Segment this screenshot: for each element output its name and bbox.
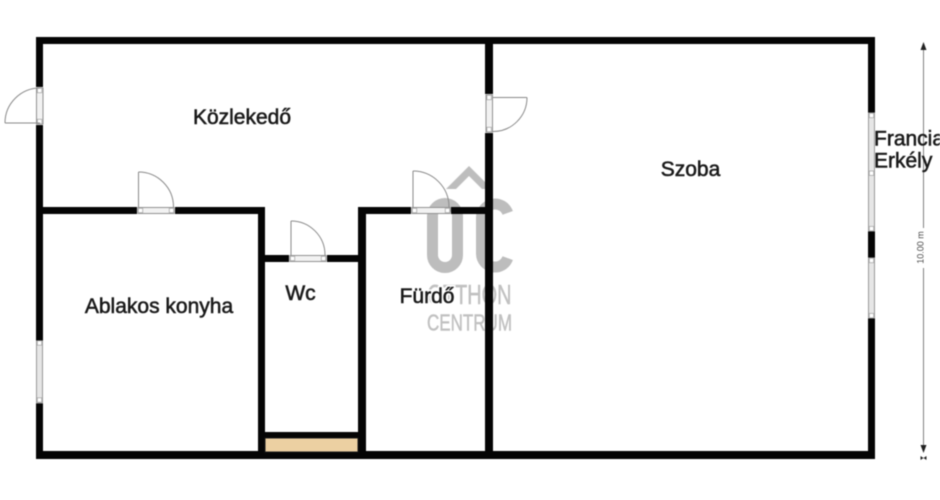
svg-text:Wc: Wc <box>285 282 315 305</box>
svg-text:CENTRUM: CENTRUM <box>427 310 512 336</box>
svg-text:Közlekedő: Közlekedő <box>193 106 291 129</box>
svg-text:Erkély: Erkély <box>874 150 933 173</box>
svg-text:Fürdő: Fürdő <box>400 285 455 308</box>
svg-text:10.00 m: 10.00 m <box>916 231 926 264</box>
svg-text:Szoba: Szoba <box>661 158 721 181</box>
svg-text:Ablakos konyha: Ablakos konyha <box>85 295 234 318</box>
svg-text:Francia: Francia <box>874 128 940 151</box>
